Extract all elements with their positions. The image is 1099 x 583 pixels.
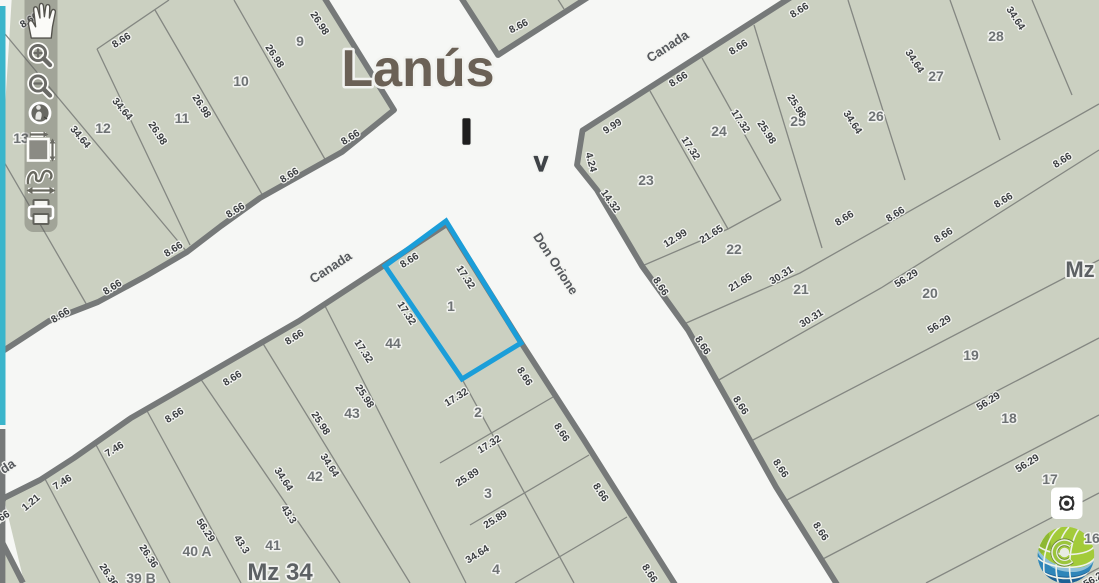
svg-text:12: 12 <box>95 120 111 136</box>
svg-text:16: 16 <box>1084 530 1099 546</box>
svg-text:26: 26 <box>868 108 884 124</box>
svg-text:44: 44 <box>385 335 401 351</box>
svg-text:23: 23 <box>638 172 654 188</box>
svg-text:Mz: Mz <box>1065 257 1094 282</box>
svg-text:2: 2 <box>474 404 482 420</box>
svg-text:39 B: 39 B <box>126 570 156 583</box>
svg-text:11: 11 <box>175 110 190 126</box>
svg-text:9: 9 <box>296 33 304 49</box>
svg-text:28: 28 <box>988 28 1004 44</box>
svg-text:19: 19 <box>963 347 979 363</box>
svg-text:42: 42 <box>307 468 323 484</box>
svg-text:21: 21 <box>793 281 809 297</box>
svg-text:17: 17 <box>1042 471 1058 487</box>
svg-text:20: 20 <box>922 285 938 301</box>
svg-text:Mz 34: Mz 34 <box>247 559 313 583</box>
svg-text:1: 1 <box>447 298 455 314</box>
svg-text:I: I <box>462 113 471 150</box>
svg-text:24: 24 <box>711 123 727 139</box>
svg-text:Lanús: Lanús <box>341 40 494 98</box>
svg-text:27: 27 <box>928 68 944 84</box>
svg-text:22: 22 <box>726 241 742 257</box>
svg-text:40 A: 40 A <box>182 543 211 559</box>
svg-text:3: 3 <box>484 485 492 501</box>
svg-text:43: 43 <box>344 405 360 421</box>
svg-text:4: 4 <box>492 561 500 577</box>
svg-text:10: 10 <box>233 73 249 89</box>
svg-text:18: 18 <box>1001 410 1017 426</box>
svg-text:41: 41 <box>265 537 281 553</box>
svg-text:V: V <box>534 153 548 176</box>
